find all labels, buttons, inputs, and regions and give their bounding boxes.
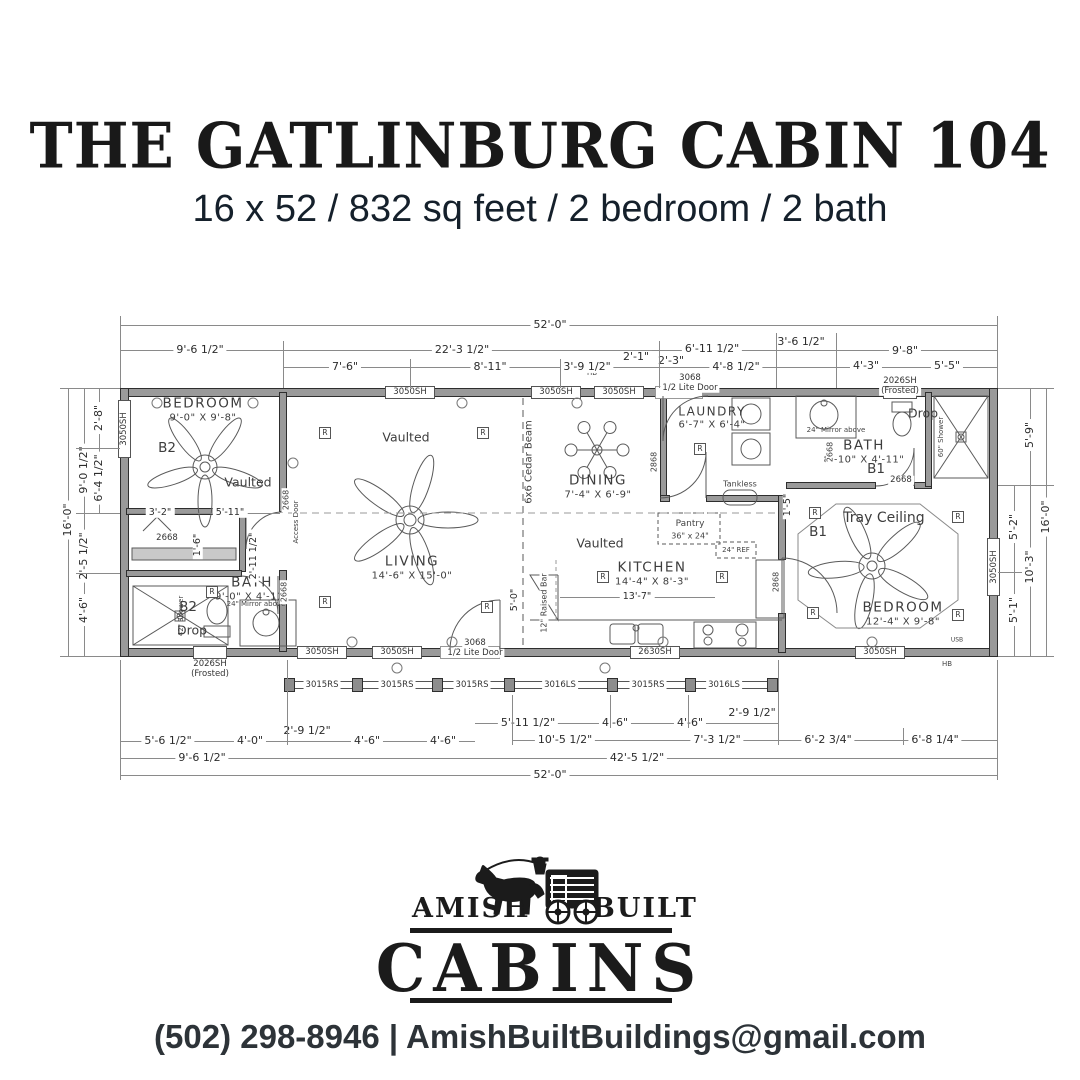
wall-lights bbox=[152, 398, 877, 673]
horse-wagon-icon bbox=[472, 854, 608, 926]
dim-line bbox=[120, 350, 998, 351]
receptacle: R bbox=[481, 601, 493, 613]
room-dining: DINING7'-4" X 6'-9" bbox=[564, 473, 631, 500]
receptacle: R bbox=[206, 586, 218, 598]
dim-guide bbox=[998, 485, 1054, 486]
dim-guide bbox=[512, 695, 513, 745]
dim: 52'-0" bbox=[530, 769, 569, 781]
window-label: 3050SH bbox=[378, 648, 415, 657]
receptacle: R bbox=[952, 511, 964, 523]
chandelier bbox=[565, 419, 629, 480]
rail-label: 3015RS bbox=[379, 681, 416, 690]
wall-laundry-south bbox=[660, 495, 670, 502]
dim-guide bbox=[997, 316, 998, 388]
dim: 5'-6 1/2" bbox=[141, 735, 194, 747]
stove bbox=[694, 622, 756, 648]
room-bedroom-left: BEDROOM9'-0" X 9'-8" bbox=[163, 396, 244, 423]
dim: 3'-6 1/2" bbox=[774, 336, 827, 348]
closet-rod bbox=[143, 517, 171, 531]
dim: 4'-0" bbox=[234, 735, 266, 747]
fridge-label: 24" REF bbox=[722, 546, 750, 554]
dim: 5'-11" bbox=[213, 508, 248, 518]
wall-kitchen-north bbox=[706, 495, 786, 502]
window-label: 3050SH bbox=[990, 548, 999, 585]
receptacle: R bbox=[716, 571, 728, 583]
dim: 4'-8 1/2" bbox=[709, 361, 762, 373]
door-size: 2868 bbox=[650, 450, 659, 474]
dim-guide bbox=[76, 448, 120, 449]
dim: 9'-6 1/2" bbox=[175, 752, 228, 764]
window-label: 3050SH bbox=[120, 410, 129, 447]
dim-guide bbox=[287, 660, 288, 745]
dim-guide bbox=[776, 333, 777, 388]
raised-bar-label: 12" Raised Bar bbox=[540, 571, 549, 634]
dim: 16'-0" bbox=[62, 500, 74, 539]
dim-line bbox=[120, 758, 998, 759]
pantry-label: Pantry bbox=[676, 519, 705, 529]
receptacle: R bbox=[477, 427, 489, 439]
door-size: 2868 bbox=[772, 570, 781, 594]
receptacle: R bbox=[694, 443, 706, 455]
dim-guide bbox=[903, 728, 904, 745]
door-size: 2668 bbox=[280, 580, 289, 604]
cedar-beam-label: 6x6 Cedar Beam bbox=[524, 418, 535, 506]
mirror-note: 24" Mirror above bbox=[807, 426, 866, 434]
dim: 2'-9 1/2" bbox=[280, 725, 333, 737]
porch-post bbox=[607, 678, 618, 692]
dim: 4'-6" bbox=[78, 594, 90, 626]
dim: 4'-3" bbox=[850, 360, 882, 372]
dim: 2'-9 1/2" bbox=[725, 707, 778, 719]
shower-size: 60" Shower bbox=[937, 417, 945, 457]
room-bedroom-right: BEDROOM12'-4" X 9'-8" bbox=[863, 600, 944, 627]
logo-cabins: CABINS bbox=[0, 930, 1080, 1007]
dim: 10'-5 1/2" bbox=[535, 734, 595, 746]
window bbox=[193, 646, 227, 659]
wall-bath1-south-a bbox=[786, 482, 876, 489]
dim-guide bbox=[610, 695, 611, 728]
window-label: 3050SH bbox=[391, 388, 428, 397]
dim-guide bbox=[120, 660, 121, 780]
window-label: 2630SH bbox=[636, 648, 673, 657]
window-label: 3050SH bbox=[537, 388, 574, 397]
receptacle: R bbox=[319, 427, 331, 439]
window-label: 3050SH bbox=[861, 648, 898, 657]
dim: 10'-3" bbox=[1024, 547, 1036, 586]
kitchen-sink bbox=[610, 624, 663, 644]
dim: 5'-5" bbox=[931, 360, 963, 372]
dim-guide bbox=[120, 316, 121, 388]
dim-guide bbox=[283, 341, 284, 388]
door-label: 1/2 Lite Door bbox=[660, 384, 719, 393]
dim-guide bbox=[998, 656, 1054, 657]
dim: 9'-6 1/2" bbox=[173, 344, 226, 356]
bar-dim: 5'-0" bbox=[510, 586, 520, 615]
door-label: 1/2 Lite Door bbox=[445, 649, 504, 658]
dim: 7'-3 1/2" bbox=[690, 734, 743, 746]
porch-post bbox=[432, 678, 443, 692]
room-bath-right: BATH8'-10" X 4'-11" bbox=[824, 438, 905, 465]
ceiling-note: Vaulted bbox=[382, 430, 429, 445]
dim: 6'-4 1/2" bbox=[93, 451, 105, 504]
pantry-size: 36" x 24" bbox=[671, 532, 709, 541]
door-size: 2668 bbox=[282, 488, 291, 512]
window-label: 3050SH bbox=[303, 648, 340, 657]
dim-guide bbox=[997, 660, 998, 780]
rail-label: 3015RS bbox=[630, 681, 667, 690]
dim-guide bbox=[76, 513, 120, 514]
window-label: (Frosted) bbox=[879, 387, 921, 396]
room-kitchen: KITCHEN14'-4" X 8'-3" bbox=[615, 560, 689, 587]
room-laundry: LAUNDRY6'-7" X 6'-4" bbox=[678, 405, 746, 430]
receptacle: R bbox=[319, 596, 331, 608]
dim: 6'-8 1/4" bbox=[908, 734, 961, 746]
dim: 5'-11 1/2" bbox=[498, 717, 558, 729]
receptacle: R bbox=[807, 607, 819, 619]
window-label: (Frosted) bbox=[189, 670, 231, 679]
contact-line: (502) 298-8946 | AmishBuiltBuildings@gma… bbox=[0, 1018, 1080, 1056]
dim: 6'-11 1/2" bbox=[682, 343, 742, 355]
dim: 4'-6" bbox=[599, 717, 631, 729]
dim: 4'-6" bbox=[427, 735, 459, 747]
door-size: 2668 bbox=[154, 534, 180, 543]
dim: 2'-8" bbox=[93, 402, 105, 434]
dim-guide bbox=[76, 573, 120, 574]
poster: THE GATLINBURG CABIN 104 16 x 52 / 832 s… bbox=[0, 0, 1080, 1080]
dim-guide bbox=[836, 333, 837, 388]
door-size: 2668 bbox=[826, 440, 835, 464]
dim: 7'-6" bbox=[329, 361, 361, 373]
room-tag: B2 bbox=[158, 440, 176, 456]
porch-post bbox=[685, 678, 696, 692]
dim: 5'-1" bbox=[1008, 594, 1020, 626]
door-size: 2668 bbox=[888, 476, 914, 485]
dim-guide bbox=[688, 695, 689, 728]
dim-guide bbox=[60, 388, 120, 389]
dim: 4'-6" bbox=[674, 717, 706, 729]
receptacle: R bbox=[809, 507, 821, 519]
porch-post bbox=[504, 678, 515, 692]
dim: 4'-6" bbox=[351, 735, 383, 747]
dim: 42'-5 1/2" bbox=[607, 752, 667, 764]
dim: 13'-7" bbox=[620, 592, 655, 602]
room-tag: B1 bbox=[809, 524, 827, 540]
porch-post bbox=[767, 678, 778, 692]
window-label: 2026SH bbox=[881, 377, 918, 386]
window-label: 3050SH bbox=[600, 388, 637, 397]
dim-guide bbox=[410, 359, 411, 388]
room-living: LIVING14'-6" X 15'-0" bbox=[372, 554, 453, 581]
drop-note: Drop bbox=[908, 406, 938, 421]
dim-guide bbox=[659, 341, 660, 388]
dim: 1'-5" bbox=[783, 491, 793, 520]
receptacle: R bbox=[952, 609, 964, 621]
window-label: 2026SH bbox=[191, 660, 228, 669]
shower-size: 42" Shower bbox=[177, 596, 185, 636]
door-label: 3068 bbox=[462, 639, 488, 648]
dim: 22'-3 1/2" bbox=[432, 344, 492, 356]
dim: 5'-9" bbox=[1024, 419, 1036, 451]
dim: 2'-1" bbox=[620, 351, 652, 363]
ceiling-note: Vaulted bbox=[576, 536, 623, 551]
ceiling-note: Vaulted bbox=[224, 475, 271, 490]
dim: 16'-0" bbox=[1040, 497, 1052, 536]
tankless-label: Tankless bbox=[723, 480, 757, 489]
usb-outlet: USB bbox=[951, 637, 963, 644]
rail-label: 3015RS bbox=[454, 681, 491, 690]
receptacle: R bbox=[597, 571, 609, 583]
mirror-note: 24" Mirror above bbox=[227, 600, 286, 608]
dim: 3'-9 1/2" bbox=[560, 361, 613, 373]
dim: 2'-5 1/2" bbox=[78, 529, 90, 582]
porch-post bbox=[352, 678, 363, 692]
rail-label: 3015RS bbox=[304, 681, 341, 690]
door-label: 3068 bbox=[677, 374, 703, 383]
dim-line bbox=[283, 367, 998, 368]
dim-guide bbox=[560, 359, 561, 388]
dim: 2'-11 1/2" bbox=[249, 530, 259, 583]
wall-laundry-west bbox=[660, 392, 667, 500]
wall-right bbox=[989, 388, 998, 657]
room-tag: B1 bbox=[867, 461, 885, 477]
dim-guide bbox=[60, 656, 120, 657]
logo-rule-bottom bbox=[410, 998, 672, 1003]
dim: 5'-2" bbox=[1008, 511, 1020, 543]
ceiling-note: Tray Ceiling bbox=[843, 510, 924, 526]
dim: 6'-2 3/4" bbox=[801, 734, 854, 746]
dim: 9'-8" bbox=[889, 345, 921, 357]
dim: 52'-0" bbox=[530, 319, 569, 331]
dim-guide bbox=[998, 572, 1022, 573]
rail-label: 3016LS bbox=[542, 681, 578, 690]
dim-guide bbox=[998, 388, 1054, 389]
dim: 9'-0 1/2" bbox=[78, 443, 90, 496]
closet-shelf bbox=[132, 548, 236, 560]
dim: 1'-6" bbox=[193, 531, 203, 560]
door-arc bbox=[782, 558, 837, 613]
dim: 8'-11" bbox=[470, 361, 509, 373]
rail-label: 3016LS bbox=[706, 681, 742, 690]
access-door-label: Access Door bbox=[292, 498, 300, 545]
hose-bib: HB bbox=[942, 660, 952, 668]
dim-guide bbox=[778, 660, 779, 745]
porch-post bbox=[284, 678, 295, 692]
wall-kitchen-east-b bbox=[778, 613, 786, 653]
dim: 3'-2" bbox=[146, 508, 175, 518]
